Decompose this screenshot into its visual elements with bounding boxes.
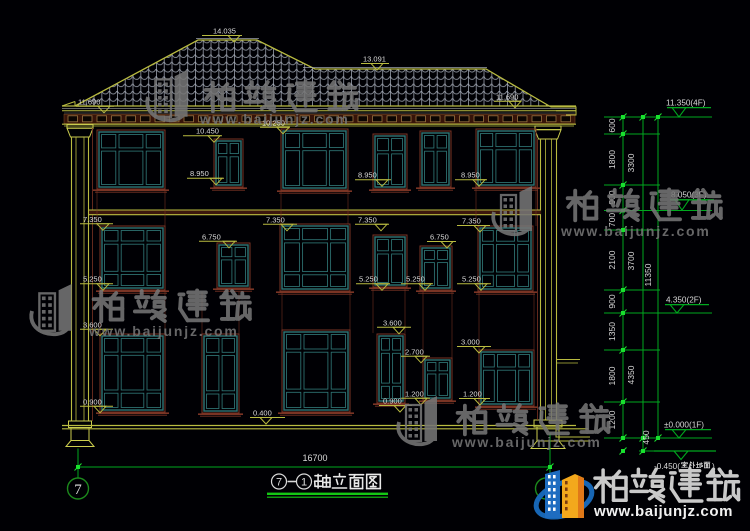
svg-text:1: 1	[301, 477, 307, 489]
svg-text:1800: 1800	[607, 366, 617, 385]
svg-text:10.450: 10.450	[196, 127, 219, 136]
svg-text:www.baijunjz.com: www.baijunjz.com	[451, 434, 602, 450]
svg-text:7: 7	[74, 482, 82, 498]
svg-text:5.250: 5.250	[462, 275, 481, 284]
svg-text:±0.000(1F): ±0.000(1F)	[664, 421, 704, 430]
svg-text:4.350(2F): 4.350(2F)	[666, 296, 702, 305]
svg-text:-0.450(: -0.450(	[654, 462, 680, 471]
svg-text:1.200: 1.200	[463, 390, 482, 399]
svg-text:7: 7	[276, 477, 282, 489]
svg-text:11350: 11350	[643, 263, 653, 286]
svg-text:0.900: 0.900	[383, 397, 402, 406]
svg-text:6.750: 6.750	[430, 233, 449, 242]
svg-text:1350: 1350	[607, 322, 617, 341]
svg-text:14.035: 14.035	[213, 27, 236, 36]
svg-text:2.700: 2.700	[405, 348, 424, 357]
svg-text:450: 450	[641, 430, 651, 444]
svg-text:3700: 3700	[626, 251, 636, 270]
svg-text:www.baijunjz.com: www.baijunjz.com	[199, 111, 350, 127]
svg-text:5.250: 5.250	[83, 275, 102, 284]
svg-text:900: 900	[607, 294, 617, 308]
svg-text:11.690: 11.690	[496, 93, 518, 102]
svg-text:7.350: 7.350	[83, 215, 102, 224]
svg-text:16700: 16700	[302, 453, 327, 463]
svg-text:0.400: 0.400	[253, 409, 272, 418]
svg-text:13.091: 13.091	[363, 55, 386, 64]
svg-text:0.900: 0.900	[83, 398, 102, 407]
svg-text:2100: 2100	[607, 250, 617, 269]
svg-text:3.000: 3.000	[461, 338, 480, 347]
svg-text:5.250: 5.250	[359, 275, 378, 284]
svg-text:8.950: 8.950	[358, 171, 377, 180]
svg-text:11.350(4F): 11.350(4F)	[666, 99, 706, 108]
svg-text:www.baijunjz.com: www.baijunjz.com	[88, 323, 239, 339]
svg-text:11.690: 11.690	[78, 98, 100, 107]
svg-text:7.350: 7.350	[462, 217, 481, 226]
svg-text:5.250: 5.250	[406, 275, 425, 284]
svg-text:3300: 3300	[626, 153, 636, 172]
svg-text:7.350: 7.350	[358, 216, 377, 225]
svg-text:4350: 4350	[626, 365, 636, 384]
svg-text:600: 600	[607, 118, 617, 132]
svg-text:3.600: 3.600	[383, 319, 402, 328]
svg-text:1.200: 1.200	[405, 390, 424, 399]
svg-text:6.750: 6.750	[202, 233, 221, 242]
svg-text:8.950: 8.950	[461, 171, 480, 180]
svg-text:www.baijunjz.com: www.baijunjz.com	[593, 503, 733, 520]
svg-text:www.baijunjz.com: www.baijunjz.com	[560, 223, 711, 239]
svg-text:1800: 1800	[607, 150, 617, 169]
svg-text:8.950: 8.950	[190, 169, 209, 178]
svg-text:7.350: 7.350	[266, 216, 285, 225]
